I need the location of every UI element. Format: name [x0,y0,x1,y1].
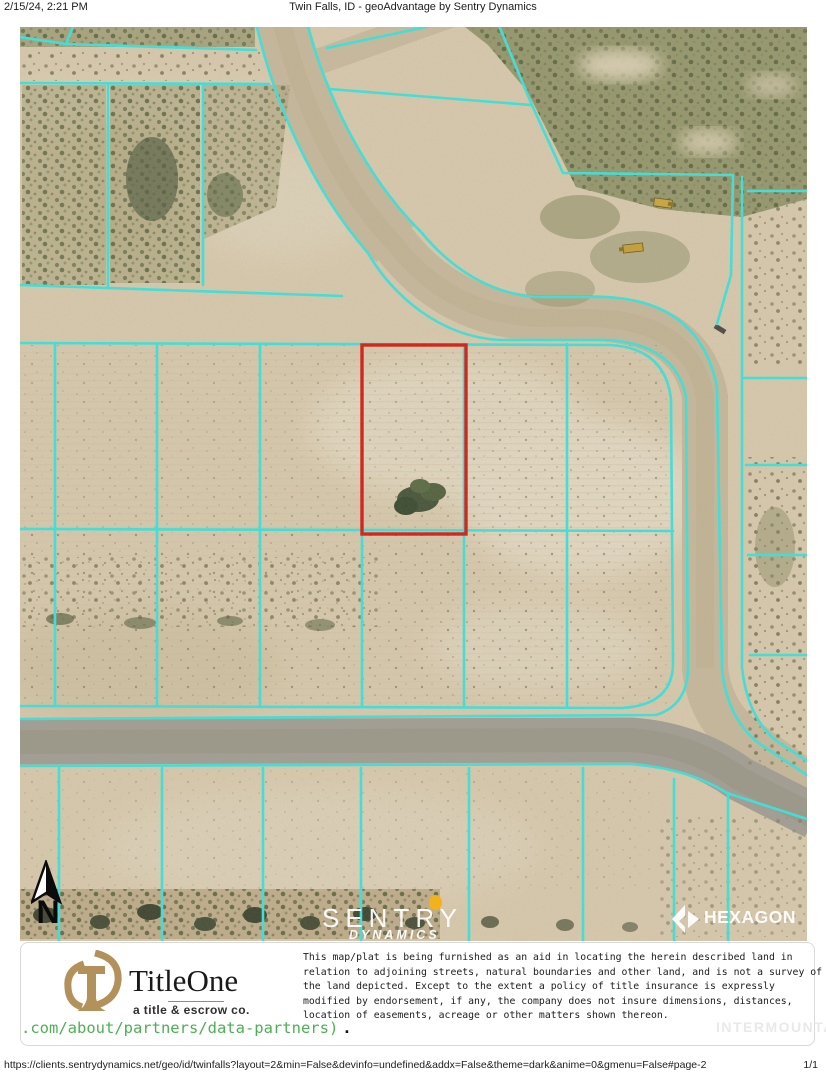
partners-url-green: .com/about/partners/data-partners) [21,1019,338,1037]
printed-map-page: { "header": { "datetime": "2/15/24, 2:21… [0,0,826,1080]
north-arrow-label: N [31,895,65,930]
disclaimer-line: This map/plat is being furnished as an a… [303,952,793,963]
disclaimer-text: This map/plat is being furnished as an a… [303,951,817,1024]
sentry-logo-subtext: DYNAMICS [349,928,440,942]
sand-texture [20,27,807,941]
map-canvas [20,27,807,941]
titleone-name: TitleOne [129,963,238,999]
titleone-tagline: a title & escrow co. [133,1003,250,1017]
hexagon-logo-icon [671,902,701,935]
disclaimer-line: the land depicted. Except to the extent … [303,981,775,992]
sentry-logo-dot-icon [429,895,442,910]
disclaimer-line: location of easements, acreage or other … [303,1010,669,1021]
page-title: Twin Falls, ID - geoAdvantage by Sentry … [0,1,826,13]
titleone-underline [168,1001,224,1002]
disclaimer-line: modified by endorsement, if any, the com… [303,996,793,1007]
aerial-map [20,27,807,941]
intermountain-watermark: INTERMOUNTAIN [716,1019,826,1035]
titleone-logo-icon [57,950,131,1016]
disclaimer-line: relation to adjoining streets, natural b… [303,967,822,978]
print-source-url: https://clients.sentrydynamics.net/geo/i… [4,1059,706,1071]
hexagon-logo-text: HEXAGON [704,907,796,928]
page-number: 1/1 [803,1059,818,1071]
